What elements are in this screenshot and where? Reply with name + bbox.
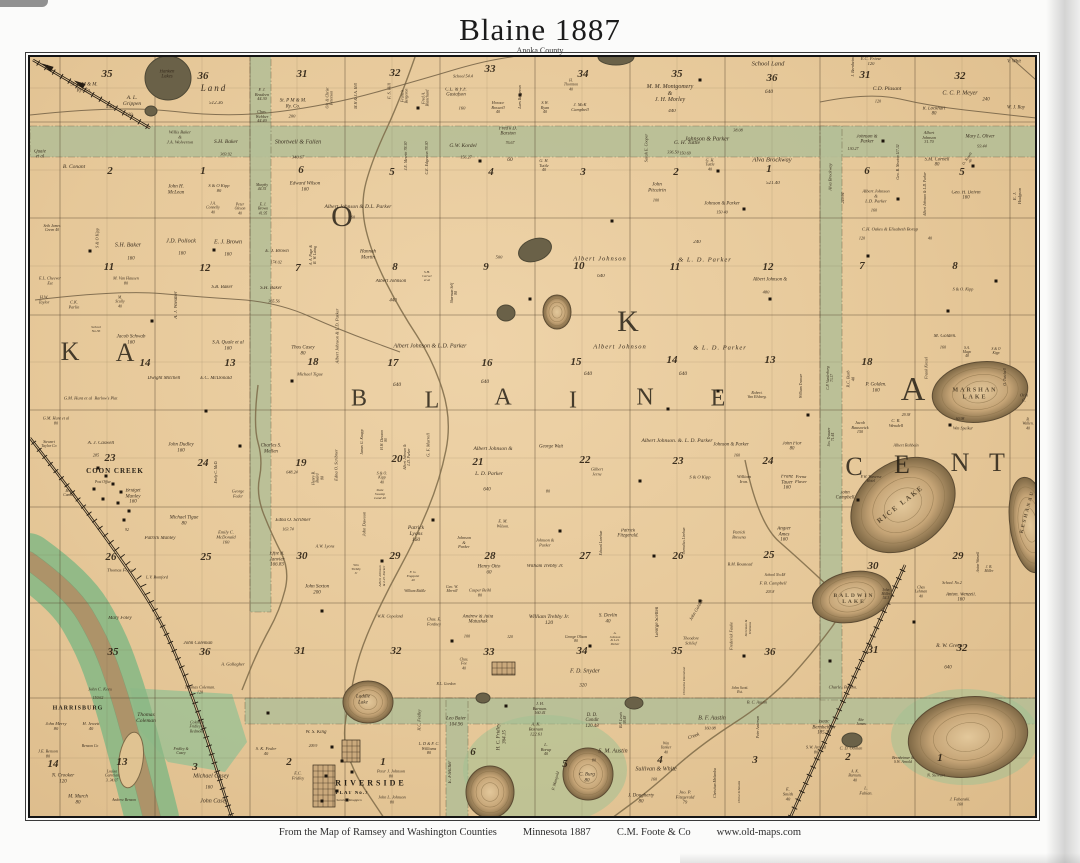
caption-state-year: Minnesota 1887	[523, 827, 591, 838]
lake	[563, 748, 613, 800]
building-marker	[105, 475, 108, 478]
road-band	[446, 698, 468, 816]
building-marker	[867, 255, 870, 258]
caption-publisher: C.M. Foote & Co	[617, 827, 691, 838]
map-caption: From the Map of Ramsey and Washington Co…	[0, 827, 1080, 838]
page-subtitle: Anoka County	[0, 46, 1080, 55]
road	[1008, 57, 1035, 80]
map-canvas: KAOKABLAINECENT3536313233343536313221654…	[28, 55, 1037, 818]
building-marker	[947, 310, 950, 313]
building-marker	[807, 414, 810, 417]
lake	[497, 305, 515, 321]
building-marker	[432, 519, 435, 522]
lake	[928, 356, 1031, 429]
building-marker	[112, 483, 115, 486]
building-marker	[949, 424, 952, 427]
caption-source: From the Map of Ramsey and Washington Co…	[279, 827, 497, 838]
railroad-tie	[141, 584, 146, 587]
lake	[625, 697, 643, 709]
building-marker	[325, 775, 328, 778]
building-marker	[321, 800, 324, 803]
railroad-tie	[114, 547, 119, 551]
building-marker	[102, 498, 105, 501]
building-marker	[699, 600, 702, 603]
building-marker	[351, 771, 354, 774]
building-marker	[882, 140, 885, 143]
building-marker	[829, 660, 832, 663]
building-marker	[89, 250, 92, 253]
building-marker	[743, 208, 746, 211]
railroad-tie	[131, 569, 136, 573]
road-band	[250, 57, 271, 612]
lake	[145, 106, 157, 116]
building-marker	[717, 170, 720, 173]
building-marker	[120, 491, 123, 494]
building-marker	[529, 298, 532, 301]
building-marker	[128, 510, 131, 513]
building-marker	[213, 249, 216, 252]
building-marker	[239, 445, 242, 448]
building-marker	[611, 220, 614, 223]
lake	[343, 681, 393, 723]
map-art	[30, 57, 1035, 816]
building-marker	[743, 655, 746, 658]
lake	[842, 733, 862, 747]
building-marker	[717, 390, 720, 393]
building-marker	[913, 621, 916, 624]
road	[30, 57, 523, 115]
building-marker	[699, 79, 702, 82]
building-marker	[479, 160, 482, 163]
scan-shadow-right	[1046, 0, 1080, 863]
building-marker	[589, 645, 592, 648]
building-marker	[97, 467, 100, 470]
lake	[145, 57, 191, 100]
building-marker	[117, 502, 120, 505]
building-marker	[381, 560, 384, 563]
building-marker	[151, 320, 154, 323]
page-title: Blaine 1887	[0, 12, 1080, 48]
town-plat	[313, 765, 335, 807]
building-marker	[93, 488, 96, 491]
building-marker	[346, 799, 349, 802]
building-marker	[341, 760, 344, 763]
lake	[543, 295, 571, 329]
building-marker	[417, 107, 420, 110]
building-marker	[857, 499, 860, 502]
town-plat	[342, 740, 360, 762]
building-marker	[972, 165, 975, 168]
railroad-tie	[126, 561, 131, 565]
lake	[466, 766, 514, 816]
building-marker	[321, 610, 324, 613]
building-marker	[505, 705, 508, 708]
creek	[612, 460, 842, 816]
road	[820, 96, 1035, 118]
building-marker	[451, 640, 454, 643]
railroad-tie	[137, 576, 142, 580]
building-marker	[123, 519, 126, 522]
lake	[476, 693, 490, 703]
scan-smudge	[0, 0, 48, 7]
building-marker	[995, 280, 998, 283]
building-marker	[519, 94, 522, 97]
building-marker	[559, 530, 562, 533]
building-marker	[769, 298, 772, 301]
building-marker	[653, 555, 656, 558]
building-marker	[291, 380, 294, 383]
building-marker	[667, 408, 670, 411]
caption-website: www.old-maps.com	[717, 827, 801, 838]
building-marker	[336, 790, 339, 793]
building-marker	[897, 198, 900, 201]
building-marker	[639, 480, 642, 483]
scan-shadow-bottom	[680, 853, 1080, 863]
building-marker	[205, 410, 208, 413]
building-marker	[267, 712, 270, 715]
lake	[598, 57, 634, 65]
lake	[515, 234, 554, 266]
railroad-tie	[145, 592, 150, 595]
town-plat	[492, 662, 515, 675]
building-marker	[331, 746, 334, 749]
